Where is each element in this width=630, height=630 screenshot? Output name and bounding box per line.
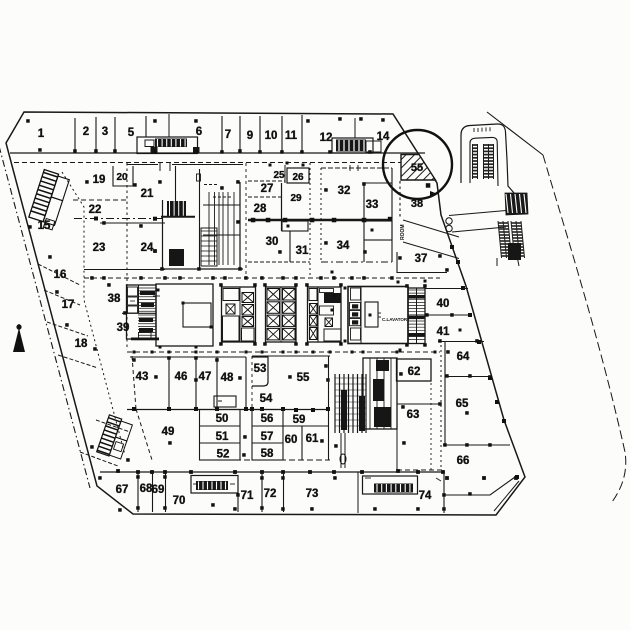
- svg-text:25: 25: [273, 170, 285, 181]
- svg-text:57: 57: [261, 431, 274, 443]
- svg-text:7: 7: [225, 129, 231, 141]
- svg-text:32: 32: [338, 185, 351, 197]
- svg-text:33: 33: [366, 199, 379, 211]
- svg-text:67: 67: [116, 484, 129, 496]
- svg-text:53: 53: [254, 363, 267, 375]
- svg-text:16: 16: [54, 269, 67, 281]
- svg-text:11: 11: [285, 130, 298, 142]
- svg-text:24: 24: [141, 242, 154, 254]
- svg-text:38: 38: [411, 198, 423, 210]
- svg-text:60: 60: [285, 434, 298, 446]
- svg-text:21: 21: [141, 188, 154, 200]
- svg-text:59: 59: [293, 414, 306, 426]
- svg-text:55: 55: [297, 372, 310, 384]
- svg-text:51: 51: [216, 431, 229, 443]
- svg-text:ROOM: ROOM: [400, 224, 406, 240]
- svg-text:58: 58: [261, 448, 274, 460]
- svg-text:61: 61: [306, 433, 319, 445]
- svg-text:66: 66: [457, 455, 470, 467]
- svg-text:55: 55: [411, 162, 423, 174]
- svg-text:73: 73: [306, 488, 319, 500]
- svg-text:63: 63: [407, 409, 420, 421]
- svg-text:19: 19: [93, 174, 106, 186]
- svg-text:56: 56: [261, 413, 274, 425]
- svg-text:64: 64: [457, 351, 470, 363]
- svg-text:50: 50: [216, 413, 229, 425]
- svg-text:26: 26: [292, 172, 304, 183]
- svg-text:3: 3: [102, 126, 108, 138]
- svg-text:40: 40: [437, 298, 450, 310]
- svg-text:28: 28: [254, 203, 267, 215]
- svg-text:39: 39: [117, 322, 130, 334]
- svg-text:12: 12: [320, 132, 333, 144]
- svg-text:18: 18: [75, 338, 88, 350]
- svg-text:74: 74: [419, 490, 432, 502]
- svg-text:46: 46: [175, 371, 188, 383]
- svg-text:52: 52: [217, 449, 230, 461]
- svg-text:34: 34: [337, 240, 350, 252]
- svg-text:2: 2: [83, 126, 89, 138]
- svg-text:31: 31: [296, 245, 309, 257]
- svg-text:38: 38: [108, 293, 121, 305]
- svg-text:1: 1: [38, 128, 45, 140]
- svg-text:10: 10: [265, 130, 278, 142]
- svg-text:71: 71: [241, 490, 254, 502]
- svg-text:65: 65: [456, 398, 469, 410]
- svg-text:9: 9: [247, 130, 253, 142]
- svg-text:47: 47: [199, 371, 212, 383]
- svg-text:72: 72: [264, 488, 277, 500]
- svg-text:62: 62: [408, 366, 421, 378]
- svg-text:41: 41: [437, 326, 450, 338]
- svg-text:69: 69: [152, 484, 165, 496]
- svg-text:54: 54: [260, 393, 273, 405]
- svg-text:23: 23: [93, 242, 106, 254]
- svg-text:15: 15: [38, 220, 51, 232]
- svg-text:14: 14: [377, 131, 390, 143]
- svg-text:43: 43: [136, 371, 149, 383]
- svg-text:49: 49: [162, 426, 175, 438]
- svg-text:20: 20: [116, 172, 128, 183]
- svg-text:6: 6: [196, 126, 202, 138]
- svg-text:17: 17: [62, 299, 75, 311]
- svg-text:29: 29: [290, 193, 302, 204]
- svg-text:22: 22: [89, 204, 102, 216]
- svg-text:37: 37: [415, 253, 428, 265]
- svg-text:C.LAVATORY: C.LAVATORY: [382, 317, 410, 322]
- svg-text:70: 70: [173, 495, 186, 507]
- svg-text:5: 5: [128, 127, 135, 139]
- svg-text:48: 48: [221, 372, 234, 384]
- svg-text:27: 27: [261, 183, 274, 195]
- svg-text:30: 30: [266, 236, 279, 248]
